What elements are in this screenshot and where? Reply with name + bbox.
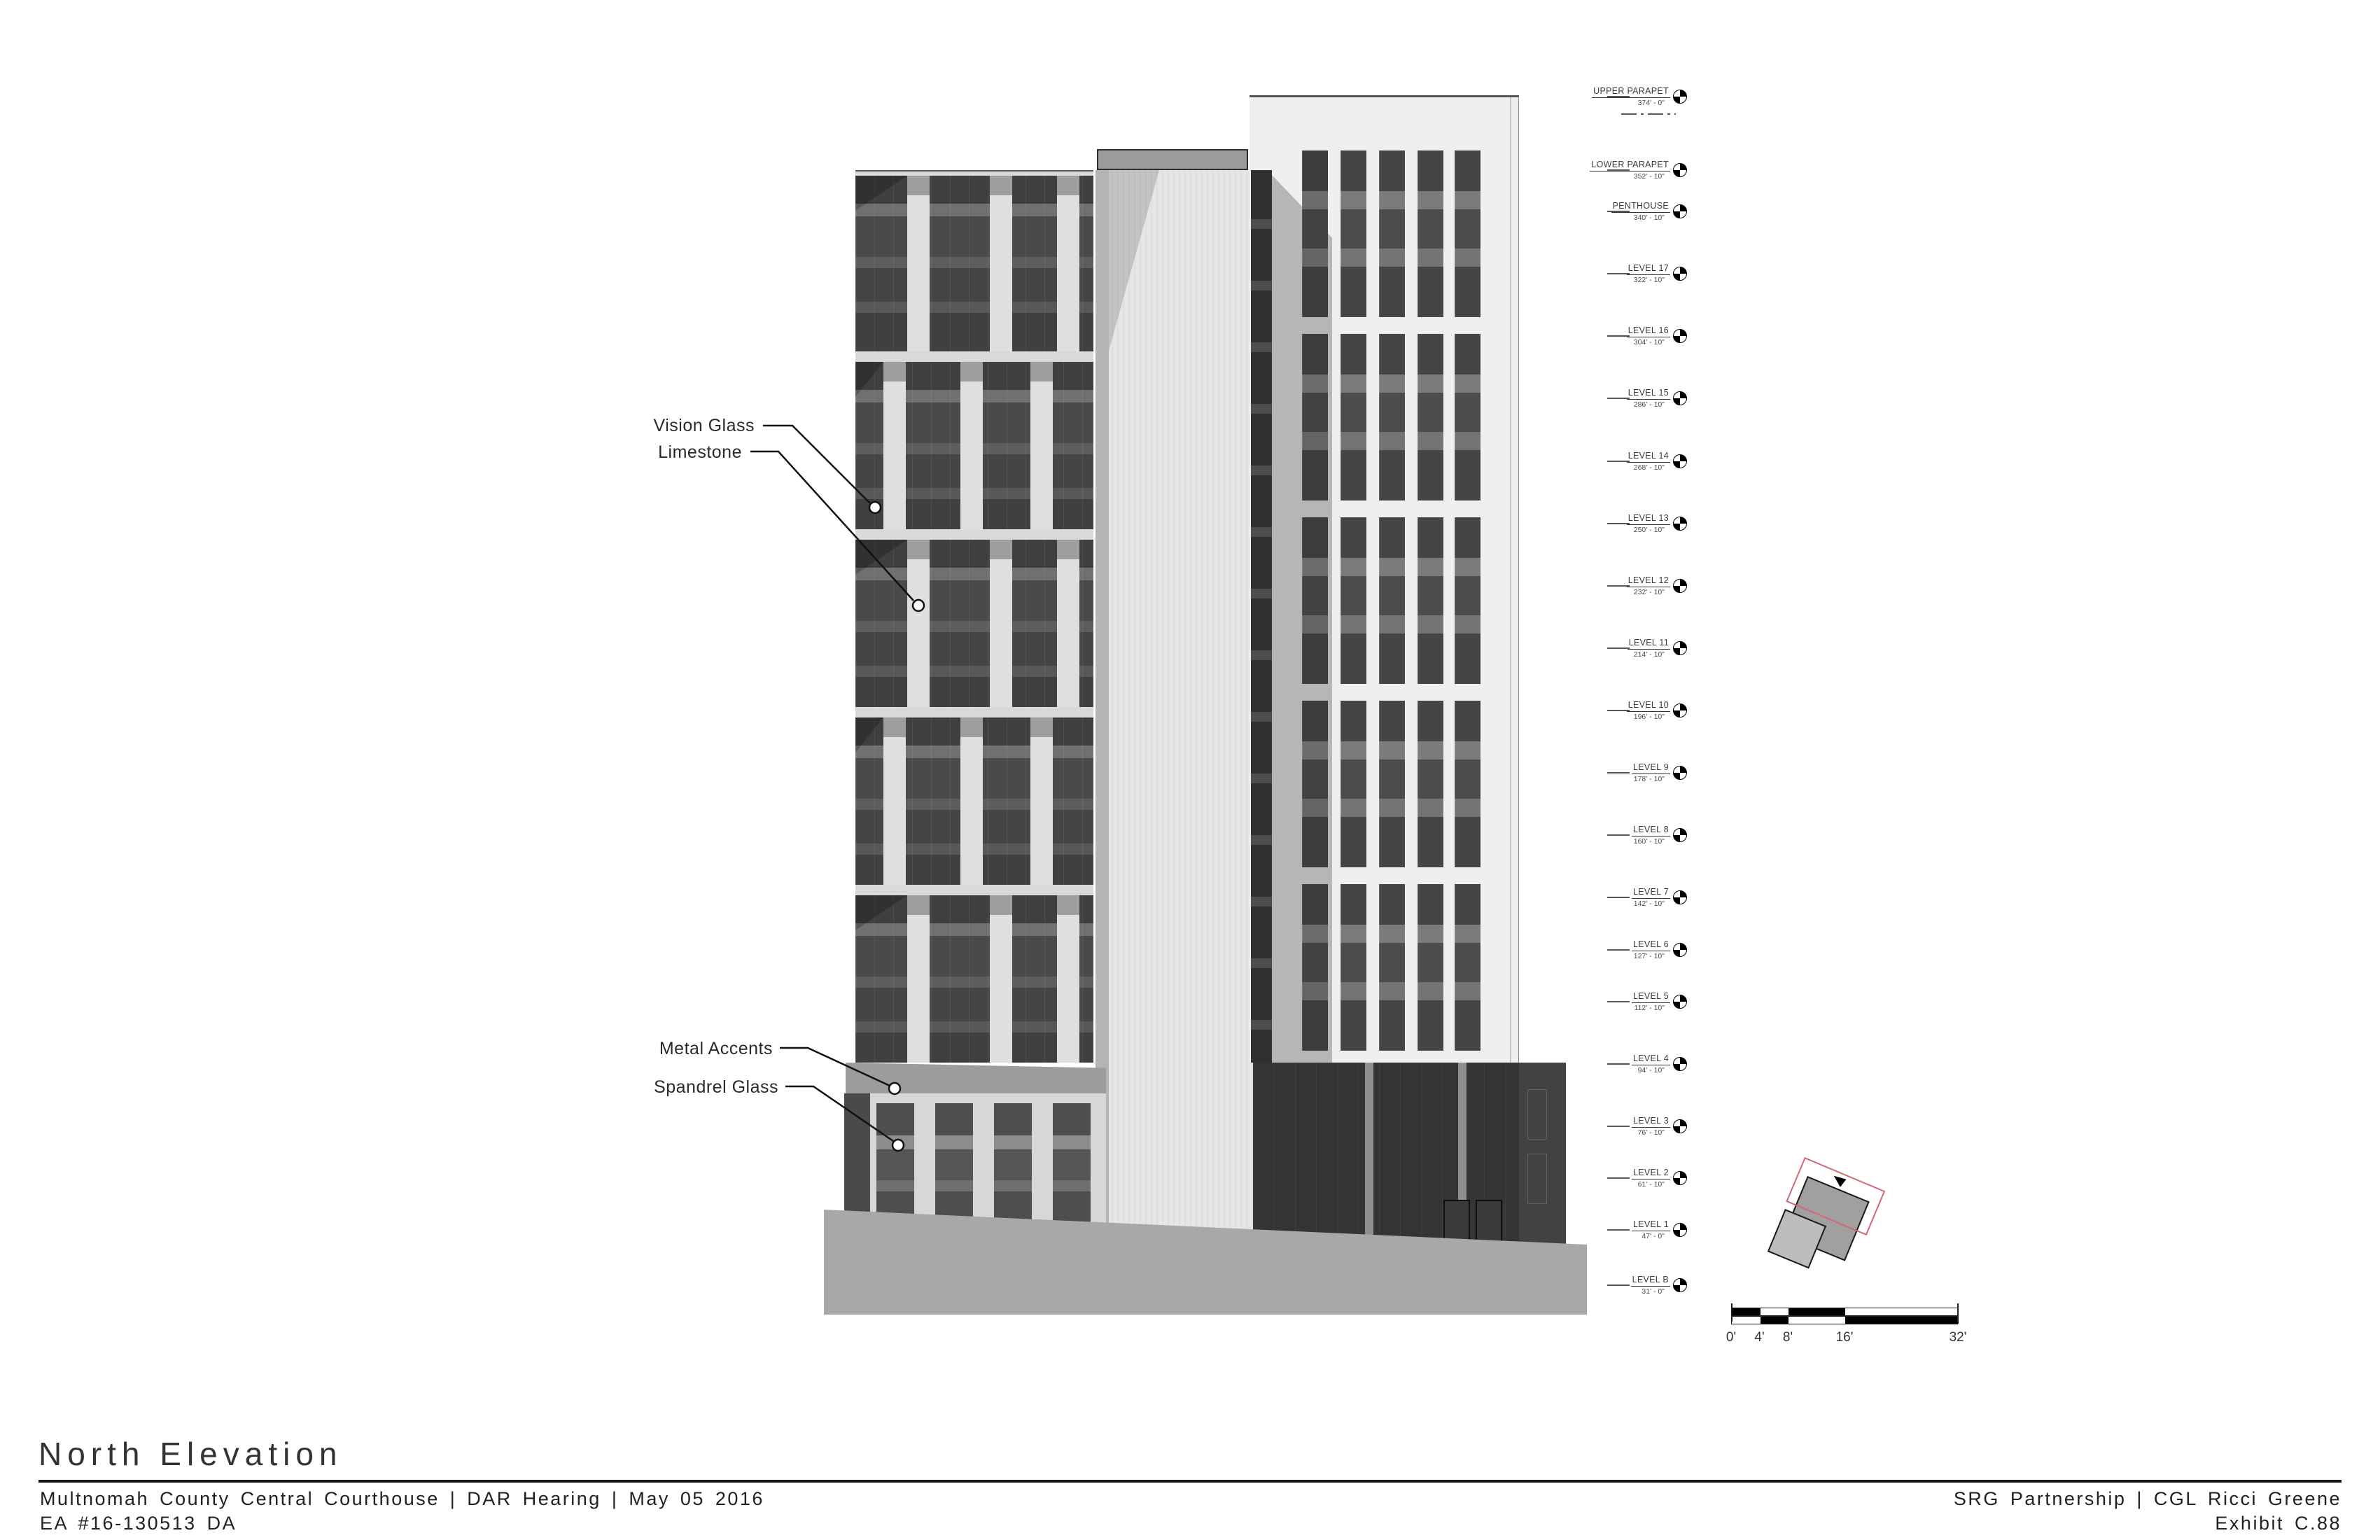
right-tower-window-strip — [1340, 517, 1366, 684]
scale-bar-row — [1731, 1308, 1958, 1316]
level-elevation: 94' - 10" — [1568, 1065, 1670, 1074]
limestone-pier — [990, 195, 1012, 351]
limestone-pier-cap — [1057, 895, 1079, 915]
left-tower — [855, 170, 1093, 1063]
entry-door — [1476, 1200, 1502, 1246]
level-label: LEVEL 11214' - 10" — [1568, 637, 1670, 658]
datum-symbol-icon — [1673, 454, 1687, 468]
limestone-pier — [1057, 559, 1079, 707]
datum-symbol-icon — [1673, 163, 1687, 177]
right-tower-window-strip — [1417, 334, 1443, 500]
spandrel-glass-window — [935, 1103, 973, 1232]
middle-tower-face — [1095, 170, 1254, 1252]
limestone-pier — [1057, 195, 1079, 351]
title-divider-line — [38, 1480, 2341, 1483]
right-tower-window-strip — [1379, 334, 1405, 500]
limestone-pier-cap — [907, 540, 930, 559]
scale-bar-tick-label: 16' — [1836, 1330, 1854, 1345]
middle-tower-parapet-cap — [1097, 149, 1248, 170]
level-elevation: 160' - 10" — [1568, 836, 1670, 846]
scale-bar-segment — [1788, 1308, 1845, 1315]
level-name: UPPER PARAPET — [1592, 87, 1670, 98]
level-elevation: 31' - 0" — [1568, 1287, 1670, 1296]
annotation-metal-accents: Metal Accents — [659, 1039, 773, 1059]
datum-symbol-icon — [1673, 703, 1687, 717]
level-name: LEVEL 8 — [1632, 825, 1670, 836]
extension-door-outline — [1527, 1089, 1547, 1140]
connector-floor-band — [1251, 342, 1272, 352]
connector-floor-band — [1251, 589, 1272, 598]
glass-corner-shadow — [855, 176, 907, 211]
level-label: LEVEL 376' - 10" — [1568, 1115, 1670, 1136]
right-tower-window-strip — [1455, 701, 1480, 867]
level-name: LEVEL 11 — [1627, 638, 1670, 650]
level-name: LEVEL 16 — [1627, 326, 1670, 337]
limestone-pier-cap — [883, 362, 906, 381]
limestone-pier — [990, 559, 1012, 707]
connector-floor-band — [1251, 650, 1272, 660]
limestone-pier-cap — [883, 717, 906, 737]
datum-symbol-icon — [1673, 1119, 1687, 1133]
connector-floor-band — [1251, 958, 1272, 968]
graphic-scale-bar: 0'4'8'16'32' — [1731, 1303, 1958, 1345]
scale-bar-end-tick — [1957, 1303, 1959, 1322]
right-tower-face-joint — [1510, 97, 1511, 1063]
right-tower-window-strip — [1417, 701, 1443, 867]
level-name: LEVEL 4 — [1632, 1054, 1670, 1065]
level-name: LEVEL 9 — [1632, 763, 1670, 774]
datum-symbol-icon — [1673, 267, 1687, 281]
datum-symbol-icon — [1673, 641, 1687, 655]
datum-symbol-icon — [1673, 329, 1687, 343]
floor-slab-band — [855, 707, 1093, 717]
right-tower-window-shade — [1302, 884, 1328, 1051]
level-name: LOWER PARAPET — [1590, 160, 1670, 171]
limestone-pier — [960, 381, 983, 529]
level-elevation: 61' - 10" — [1568, 1179, 1670, 1189]
level-name: LEVEL 2 — [1632, 1168, 1670, 1179]
level-name: LEVEL 7 — [1632, 888, 1670, 899]
limestone-pier — [960, 737, 983, 885]
connector-floor-band — [1251, 1020, 1272, 1030]
datum-symbol-icon — [1673, 1057, 1687, 1071]
connector-floor-band — [1251, 527, 1272, 537]
scale-bar-tick-label: 4' — [1754, 1330, 1764, 1345]
level-elevation: 76' - 10" — [1568, 1128, 1670, 1137]
scale-bar-tick-label: 32' — [1949, 1330, 1967, 1345]
right-tower-window-strip — [1455, 150, 1480, 317]
datum-symbol-icon — [1673, 1171, 1687, 1185]
level-elevation: 214' - 10" — [1568, 650, 1670, 659]
datum-symbol-icon — [1673, 204, 1687, 218]
level-label: UPPER PARAPET374' - 0" — [1568, 85, 1670, 106]
project-info-line: Multnomah County Central Courthouse | DA… — [40, 1488, 764, 1510]
level-label: LEVEL 494' - 10" — [1568, 1053, 1670, 1074]
limestone-pier — [907, 559, 930, 707]
right-tower-window-strip — [1340, 334, 1366, 500]
right-tower-window-strip — [1379, 884, 1405, 1051]
level-name: LEVEL B — [1631, 1275, 1670, 1287]
right-tower-window-strip — [1379, 150, 1405, 317]
limestone-pier — [883, 381, 906, 529]
extension-door-outline — [1527, 1154, 1547, 1204]
connector-floor-band — [1251, 281, 1272, 290]
connector-floor-band — [1251, 404, 1272, 414]
glass-corner-shadow — [855, 717, 883, 752]
level-label: LEVEL 7142' - 10" — [1568, 886, 1670, 907]
left-tower-glass-band — [855, 176, 1093, 351]
right-tower-window-strip — [1340, 150, 1366, 317]
floor-slab-band — [855, 351, 1093, 362]
spandrel-glass-window — [1053, 1103, 1091, 1232]
level-label: LEVEL 6127' - 10" — [1568, 939, 1670, 960]
level-elevation: 322' - 10" — [1568, 275, 1670, 284]
limestone-pier-cap — [907, 176, 930, 195]
datum-symbol-icon — [1673, 391, 1687, 405]
spandrel-glass-window — [994, 1103, 1032, 1232]
podium-column — [1365, 1063, 1373, 1253]
datum-symbol-icon — [1673, 517, 1687, 531]
glass-corner-shadow — [855, 895, 907, 930]
right-tower-window-shade — [1302, 150, 1328, 317]
limestone-pier-cap — [1030, 717, 1053, 737]
annotation-vision-glass: Vision Glass — [654, 416, 755, 436]
level-label: LEVEL 15286' - 10" — [1568, 387, 1670, 408]
connector-floor-band — [1251, 712, 1272, 722]
limestone-pier-cap — [960, 717, 983, 737]
scale-bar-tick-label: 0' — [1726, 1330, 1736, 1345]
limestone-pier — [1030, 737, 1053, 885]
right-tower-window-shade — [1302, 334, 1328, 500]
annotation-spandrel-glass: Spandrel Glass — [654, 1077, 778, 1098]
right-tower-window-strip — [1340, 701, 1366, 867]
drawing-title: North Elevation — [38, 1435, 343, 1473]
right-tower-window-shade — [1302, 701, 1328, 867]
exhibit-number-line: Exhibit C.88 — [2215, 1513, 2341, 1534]
level-name: LEVEL 5 — [1632, 992, 1670, 1003]
right-tower-window-shade — [1302, 517, 1328, 684]
left-podium — [844, 1093, 1106, 1232]
datum-symbol-icon — [1673, 1223, 1687, 1237]
limestone-pier-cap — [1057, 540, 1079, 559]
limestone-pier-cap — [960, 362, 983, 381]
level-label: LEVEL 9178' - 10" — [1568, 762, 1670, 783]
left-tower-glass-band — [855, 362, 1093, 529]
level-label: LEVEL 147' - 0" — [1568, 1219, 1670, 1240]
glass-corner-shadow — [855, 362, 883, 397]
right-podium-storefront — [1253, 1063, 1566, 1253]
limestone-pier-cap — [990, 176, 1012, 195]
right-tower-window-strip — [1417, 150, 1443, 317]
level-elevation: 142' - 10" — [1568, 899, 1670, 908]
elevation-sheet: Vision Glass Limestone Metal Accents Spa… — [0, 0, 2380, 1540]
level-elevation: 112' - 10" — [1568, 1003, 1670, 1012]
left-tower-glass-band — [855, 540, 1093, 707]
level-label: LEVEL 13250' - 10" — [1568, 512, 1670, 533]
scale-bar-tick-label: 8' — [1783, 1330, 1793, 1345]
datum-symbol-icon — [1673, 995, 1687, 1009]
left-tower-parapet-edge — [855, 170, 1093, 176]
level-elevation: 286' - 10" — [1568, 400, 1670, 409]
level-label: LEVEL B31' - 0" — [1568, 1274, 1670, 1295]
limestone-pier-cap — [907, 895, 930, 915]
level-elevation: 352' - 10" — [1568, 171, 1670, 181]
recessed-connector — [1251, 170, 1272, 1063]
level-elevation: 178' - 10" — [1568, 774, 1670, 783]
right-tower-window-strip — [1455, 884, 1480, 1051]
right-tower-window-strip — [1455, 334, 1480, 500]
limestone-pier — [1030, 381, 1053, 529]
datum-symbol-icon — [1673, 943, 1687, 957]
connector-floor-band — [1251, 465, 1272, 475]
right-tower-window-strip — [1417, 517, 1443, 684]
limestone-pier — [907, 195, 930, 351]
level-name: LEVEL 15 — [1627, 388, 1670, 400]
limestone-pier — [907, 915, 930, 1063]
glass-corner-shadow — [855, 540, 907, 575]
floor-slab-band — [855, 529, 1093, 540]
scale-bar-segment — [1732, 1308, 1760, 1315]
annotation-limestone: Limestone — [658, 442, 742, 463]
level-name: LEVEL 3 — [1632, 1116, 1670, 1128]
datum-symbol-icon — [1673, 1278, 1687, 1292]
right-tower-window-strip — [1417, 884, 1443, 1051]
left-tower-glass-band — [855, 895, 1093, 1063]
limestone-pier-cap — [1057, 176, 1079, 195]
level-name: LEVEL 6 — [1632, 940, 1670, 951]
level-label: LEVEL 16304' - 10" — [1568, 325, 1670, 346]
level-name: LEVEL 1 — [1632, 1220, 1670, 1231]
level-label: LEVEL 10196' - 10" — [1568, 699, 1670, 720]
limestone-pier-cap — [990, 895, 1012, 915]
scale-bar-row — [1731, 1316, 1958, 1324]
connector-floor-band — [1251, 773, 1272, 783]
level-name: LEVEL 17 — [1627, 264, 1670, 275]
podium-right-extension — [1519, 1063, 1566, 1253]
level-label: LEVEL 12232' - 10" — [1568, 575, 1670, 596]
limestone-pier-cap — [1030, 362, 1053, 381]
right-tower-window-strip — [1455, 517, 1480, 684]
level-elevation: 374' - 0" — [1568, 98, 1670, 107]
level-elevation: 47' - 0" — [1568, 1231, 1670, 1240]
level-label: LEVEL 17322' - 10" — [1568, 262, 1670, 283]
limestone-pier-cap — [990, 540, 1012, 559]
level-label: LEVEL 14268' - 10" — [1568, 450, 1670, 471]
parapet-dashed-line — [1621, 113, 1676, 115]
right-tower-window-strip — [1340, 884, 1366, 1051]
right-tower-window-strip — [1379, 701, 1405, 867]
scale-bar-segment — [1845, 1317, 1959, 1324]
level-name: LEVEL 10 — [1627, 701, 1670, 712]
level-elevation: 340' - 10" — [1568, 213, 1670, 222]
right-tower — [1249, 95, 1519, 1063]
key-plan — [1778, 1147, 1925, 1287]
level-elevation: 268' - 10" — [1568, 463, 1670, 472]
firm-names-line: SRG Partnership | CGL Ricci Greene — [1954, 1488, 2341, 1510]
limestone-pier — [990, 915, 1012, 1063]
datum-symbol-icon — [1673, 890, 1687, 904]
floor-slab-band — [855, 885, 1093, 895]
left-tower-glass-band — [855, 717, 1093, 885]
connector-floor-band — [1251, 219, 1272, 229]
level-label: LEVEL 261' - 10" — [1568, 1167, 1670, 1188]
connector-floor-band — [1251, 897, 1272, 906]
level-label: PENTHOUSE340' - 10" — [1568, 200, 1670, 221]
case-number-line: EA #16-130513 DA — [40, 1513, 237, 1534]
level-label: LEVEL 8160' - 10" — [1568, 824, 1670, 845]
level-label: LOWER PARAPET352' - 10" — [1568, 159, 1670, 180]
level-elevation: 127' - 10" — [1568, 951, 1670, 960]
level-label: LEVEL 5112' - 10" — [1568, 990, 1670, 1011]
datum-symbol-icon — [1673, 579, 1687, 593]
datum-symbol-icon — [1673, 828, 1687, 842]
right-tower-window-strip — [1379, 517, 1405, 684]
level-elevation: 196' - 10" — [1568, 712, 1670, 721]
datum-symbol-icon — [1673, 766, 1687, 780]
level-name: LEVEL 13 — [1627, 514, 1670, 525]
level-elevation: 304' - 10" — [1568, 337, 1670, 346]
connector-floor-band — [1251, 835, 1272, 845]
scale-bar-end-tick — [1731, 1303, 1732, 1322]
datum-symbol-icon — [1673, 90, 1687, 104]
level-name: LEVEL 14 — [1627, 451, 1670, 463]
scale-bar-segment — [1760, 1317, 1789, 1324]
limestone-pier — [883, 737, 906, 885]
limestone-pier — [1057, 915, 1079, 1063]
level-elevation: 232' - 10" — [1568, 587, 1670, 596]
level-elevation: 250' - 10" — [1568, 525, 1670, 534]
level-name: PENTHOUSE — [1611, 202, 1671, 213]
level-name: LEVEL 12 — [1627, 576, 1670, 587]
